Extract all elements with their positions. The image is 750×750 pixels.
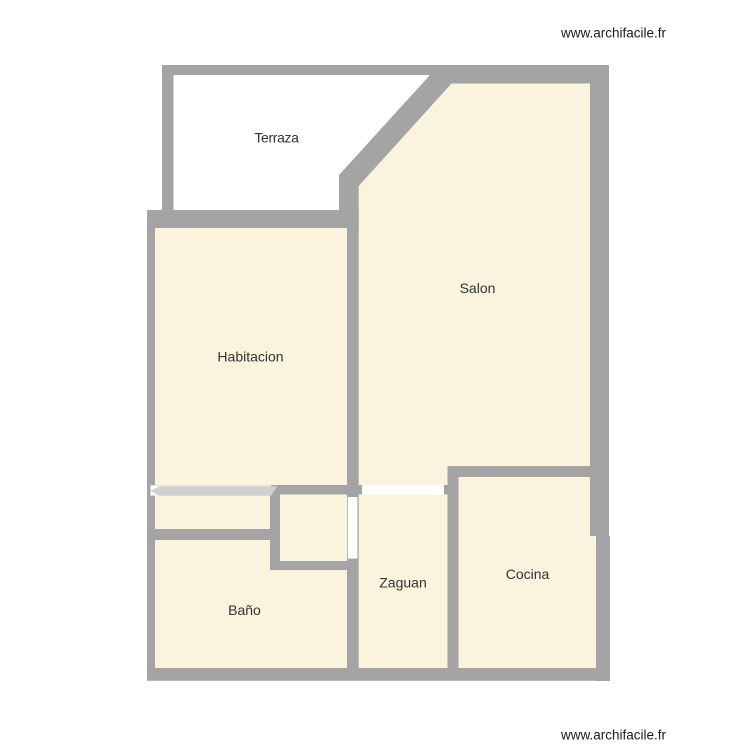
svg-text:www.archifacile.fr: www.archifacile.fr: [560, 728, 667, 743]
svg-text:Baño: Baño: [228, 602, 261, 618]
svg-text:Salon: Salon: [460, 280, 496, 296]
svg-text:Zaguan: Zaguan: [379, 575, 426, 591]
svg-text:Cocina: Cocina: [506, 566, 550, 582]
svg-text:Habitacion: Habitacion: [217, 349, 283, 365]
svg-text:Terraza: Terraza: [254, 130, 299, 146]
svg-text:www.archifacile.fr: www.archifacile.fr: [560, 26, 667, 41]
